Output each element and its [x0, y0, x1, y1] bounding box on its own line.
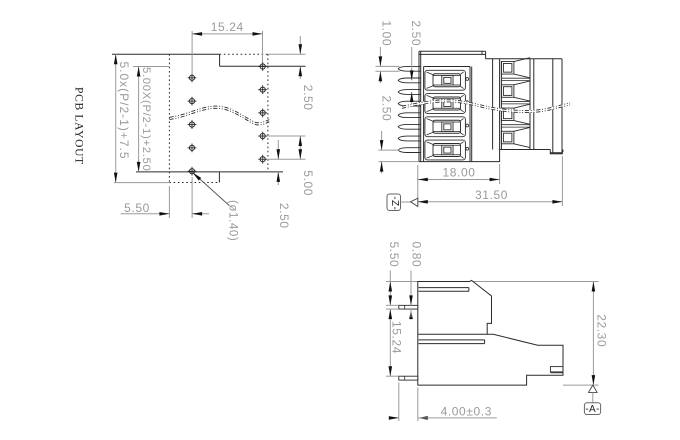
svg-text:15.24: 15.24	[389, 321, 403, 354]
svg-text:(ø1.40): (ø1.40)	[227, 200, 239, 241]
svg-text:4.00±0.3: 4.00±0.3	[441, 404, 492, 418]
svg-text:-A-: -A-	[585, 404, 600, 415]
svg-text:5.00X(P/2-1)+2.50: 5.00X(P/2-1)+2.50	[140, 67, 152, 172]
svg-text:PCB LAYOUT: PCB LAYOUT	[73, 87, 85, 165]
svg-text:5.50: 5.50	[387, 242, 401, 268]
svg-text:5.00: 5.00	[301, 170, 315, 196]
svg-text:2.50: 2.50	[277, 203, 291, 229]
svg-text:31.50: 31.50	[475, 188, 508, 202]
svg-text:15.24: 15.24	[211, 20, 244, 34]
svg-text:0.80: 0.80	[410, 242, 424, 268]
svg-text:5.0x(P/2-1)+7.5: 5.0x(P/2-1)+7.5	[117, 62, 131, 160]
svg-text:2.50: 2.50	[301, 85, 315, 111]
svg-text:2.50: 2.50	[409, 20, 423, 46]
svg-text:22.30: 22.30	[594, 314, 608, 347]
svg-text:18.00: 18.00	[442, 166, 475, 180]
svg-text:-Z-: -Z-	[389, 196, 400, 210]
svg-text:1.00: 1.00	[379, 20, 393, 46]
svg-text:2.50: 2.50	[379, 96, 393, 122]
svg-text:5.50: 5.50	[124, 201, 150, 215]
